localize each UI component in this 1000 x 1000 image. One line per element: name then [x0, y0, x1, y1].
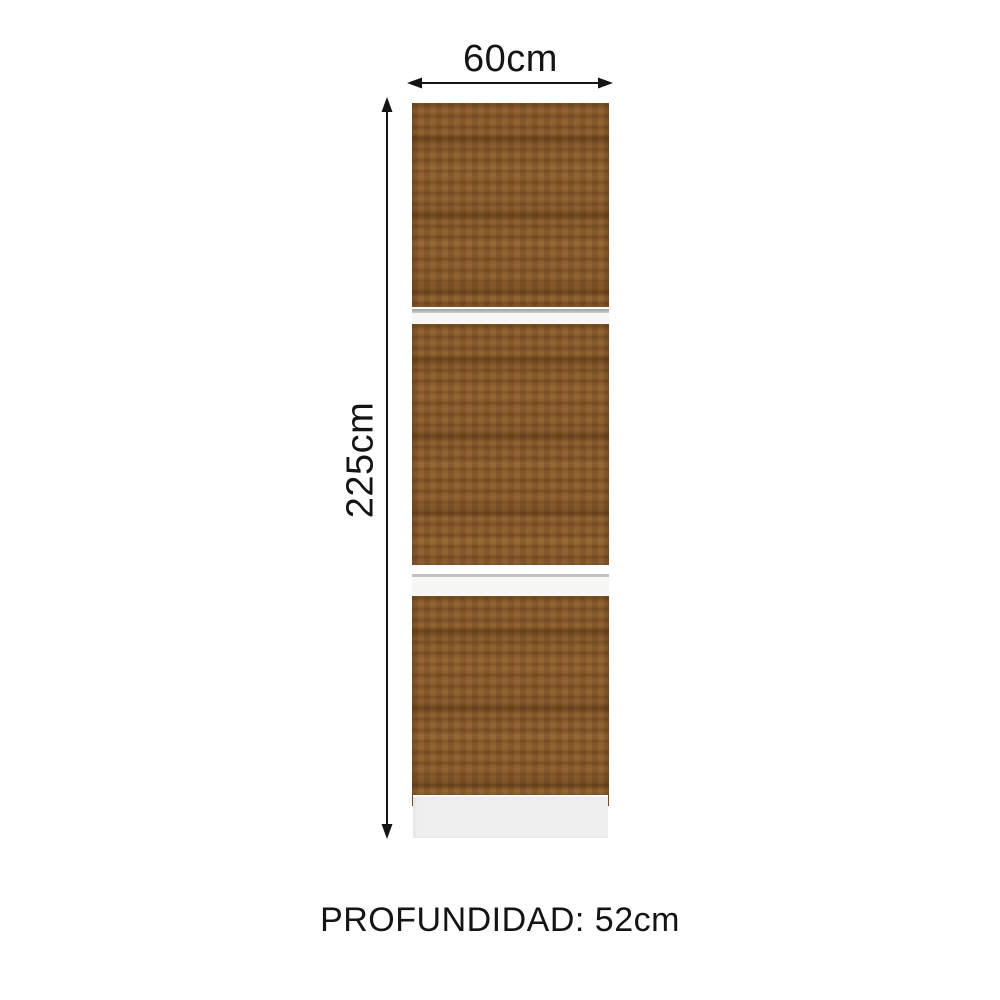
- cabinet-front-view: [412, 103, 609, 806]
- cabinet-plinth-base: [413, 795, 608, 838]
- door-gap-upper: [412, 309, 609, 324]
- product-dimension-diagram: 60cm 225cm PROFUNDIDAD: 52cm: [0, 0, 1000, 1000]
- depth-dimension-label: PROFUNDIDAD: 52cm: [0, 901, 1000, 940]
- door-panel-top: [412, 103, 609, 307]
- height-dimension-arrow: [379, 96, 395, 840]
- door-handle-line: [412, 574, 609, 577]
- door-panel-bottom: [412, 596, 609, 806]
- door-gap-lower: [412, 574, 609, 596]
- door-panel-middle: [412, 324, 609, 565]
- door-handle-line: [412, 309, 609, 313]
- height-dimension-label: 225cm: [340, 402, 383, 519]
- width-dimension-arrow: [406, 75, 614, 91]
